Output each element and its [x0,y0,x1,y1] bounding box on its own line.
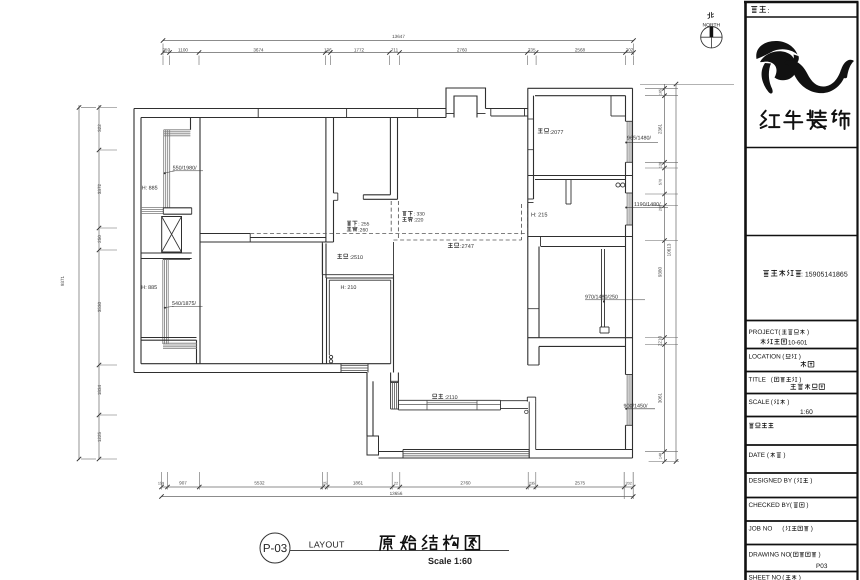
svg-text:1190/1480/: 1190/1480/ [634,202,661,208]
svg-text:): ) [811,526,813,533]
svg-text::2510: :2510 [350,255,364,261]
svg-text:322: 322 [97,124,102,132]
svg-text:202: 202 [626,47,634,52]
svg-text:SCALE: SCALE [749,399,770,406]
svg-text:128: 128 [659,162,663,168]
svg-text:): ) [799,575,801,580]
svg-text:3372: 3372 [97,183,102,194]
svg-text::2077: :2077 [550,130,564,136]
svg-text:711: 711 [391,47,399,52]
svg-text:1100: 1100 [178,47,188,52]
svg-text:202: 202 [626,482,632,486]
svg-text:9371: 9371 [60,275,65,286]
svg-text:13656: 13656 [390,491,403,496]
svg-text:2361: 2361 [658,123,663,134]
svg-text:259: 259 [162,47,170,52]
svg-text:1861: 1861 [353,481,364,486]
svg-text:): ) [807,329,809,336]
svg-text:1834: 1834 [97,384,102,395]
svg-text:965/1480/: 965/1480/ [627,136,651,142]
svg-text:165: 165 [659,89,663,95]
svg-text:): ) [799,377,801,384]
svg-text:): ) [799,354,801,361]
svg-text:5532: 5532 [254,481,265,486]
svg-text:22: 22 [394,482,398,486]
svg-text:LOCATION: LOCATION [749,354,782,361]
svg-text:H: 885: H: 885 [142,185,158,191]
svg-text:P-03: P-03 [263,543,287,555]
svg-text:2210: 2210 [658,335,663,346]
svg-text::2110: :2110 [445,395,458,401]
svg-text:SHEET NO: SHEET NO [749,575,782,580]
svg-text:235: 235 [528,47,536,52]
svg-text:250: 250 [97,235,102,243]
svg-text:JOB NO: JOB NO [749,526,773,533]
svg-text:): ) [810,478,812,485]
svg-text::2747: :2747 [460,244,474,250]
svg-text:CHECKED BY: CHECKED BY [749,502,791,509]
svg-text:): ) [818,552,820,559]
svg-text:): ) [806,502,808,509]
svg-text:235: 235 [529,482,535,486]
svg-text:: 15905141865: : 15905141865 [801,272,848,279]
svg-text:25: 25 [323,482,327,486]
svg-text:1772: 1772 [354,47,365,52]
svg-text:DRAWING NO: DRAWING NO [749,552,791,559]
svg-text:LAYOUT: LAYOUT [309,540,345,550]
svg-text:2760: 2760 [460,481,471,486]
svg-text:TITLE: TITLE [749,377,766,384]
svg-text::220: :220 [414,218,424,224]
svg-text:10-601: 10-601 [788,339,808,346]
svg-text:148: 148 [659,453,663,459]
svg-text:P03: P03 [816,563,828,570]
svg-text:13647: 13647 [392,34,405,39]
svg-text:3061: 3061 [658,392,663,403]
svg-text:159: 159 [158,482,164,486]
svg-text::260: :260 [358,227,368,233]
svg-text:10613: 10613 [667,243,672,256]
svg-text:H: 210: H: 210 [341,285,357,291]
svg-text:Scale 1:60: Scale 1:60 [428,556,472,566]
svg-text:DATE: DATE [749,452,766,459]
svg-text:PROJECT: PROJECT [749,329,779,336]
svg-text:1225: 1225 [97,431,102,442]
svg-text:9380: 9380 [658,266,663,277]
svg-text:2760: 2760 [457,47,468,52]
svg-text:136: 136 [324,47,332,52]
svg-text::: : [768,6,770,15]
svg-text:DESIGNED BY: DESIGNED BY [749,478,793,485]
svg-text:570: 570 [659,179,663,185]
svg-text:): ) [787,399,789,406]
svg-text:1:60: 1:60 [800,409,813,416]
svg-text:3530: 3530 [97,301,102,312]
svg-text:2575: 2575 [575,481,586,486]
svg-text:H: 215: H: 215 [531,213,547,219]
svg-text:907: 907 [179,481,187,486]
svg-text:): ) [783,452,785,459]
svg-text:3674: 3674 [253,47,264,52]
svg-text:2568: 2568 [575,47,586,52]
svg-text:H: 885: H: 885 [141,285,157,291]
